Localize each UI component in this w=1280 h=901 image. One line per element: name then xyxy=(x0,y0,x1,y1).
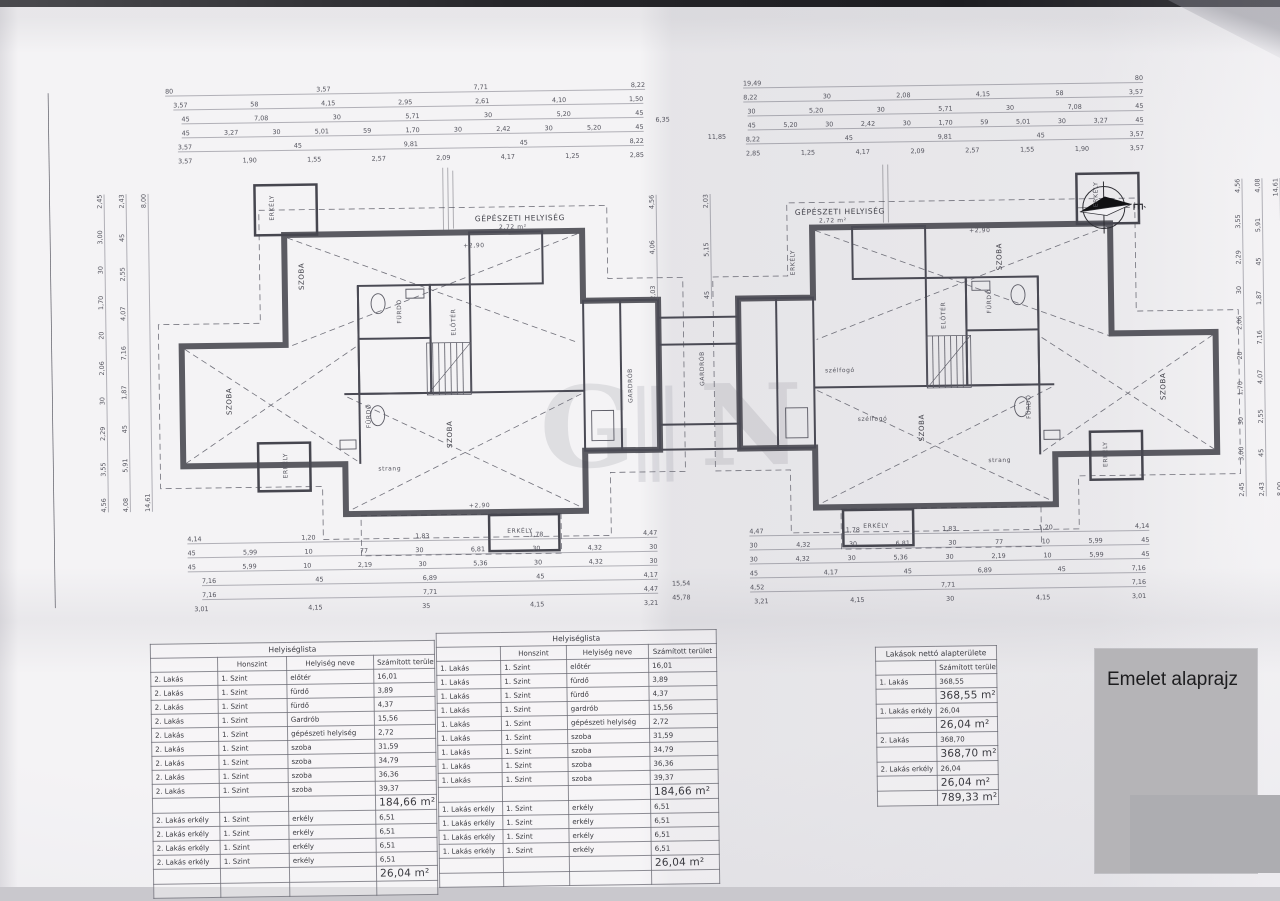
dim-value: 4,06 xyxy=(649,240,656,254)
table-cell: 15,56 xyxy=(374,710,435,725)
table-cell: 34,79 xyxy=(375,752,436,767)
dim-value: 3,57 xyxy=(173,102,187,109)
table-cell: 1. Szint xyxy=(219,768,288,783)
dim-value: 2,03 xyxy=(703,194,710,208)
dim-value: 6,89 xyxy=(978,567,992,574)
table-cell: 1. Lakás erkély xyxy=(876,703,936,718)
table-cell: 1. Lakás xyxy=(438,758,502,773)
dim-value: 5,20 xyxy=(587,125,601,132)
room-label-erkely-bl: ERKÉLY xyxy=(282,453,289,479)
room-label-furdo2-r: FÜRDŐ xyxy=(1025,395,1032,419)
dim-value: 1,25 xyxy=(801,150,815,157)
dim-value: 3,00 xyxy=(97,230,104,244)
table-cell: fürdő xyxy=(567,672,649,687)
dim-value: 5,71 xyxy=(405,113,419,120)
dim-value: 80 xyxy=(165,88,173,95)
room-label-szoba-tr: SZOBA xyxy=(995,243,1003,270)
dim-value: 4,56 xyxy=(101,498,108,512)
dim-value: 2,45 xyxy=(97,194,104,208)
table-cell: 26,04 m² xyxy=(376,865,437,881)
dim-value: 45 xyxy=(1135,103,1143,110)
dim-value: 7,71 xyxy=(423,589,437,596)
table-cell xyxy=(503,857,569,873)
dim-value: 1,83 xyxy=(415,533,429,540)
dim-value: 7,71 xyxy=(941,582,955,589)
dim-value: 30 xyxy=(484,112,492,119)
dim-value: 30 xyxy=(747,108,755,115)
dim-value: 4,47 xyxy=(749,528,763,535)
room-label-gardrob-l: GARDRÓB xyxy=(627,368,634,403)
dim-value: 30 xyxy=(99,397,106,405)
dim-value: 5,20 xyxy=(809,107,823,114)
dim-value: 30 xyxy=(454,126,462,133)
dim-value: 5,20 xyxy=(557,111,571,118)
dim-value: 45 xyxy=(294,143,302,150)
dim-value: 10 xyxy=(303,563,311,570)
column-header: Helyiség neve xyxy=(286,655,373,670)
dim-value: 4,15 xyxy=(321,100,335,107)
table-cell: 2. Lakás xyxy=(877,732,937,747)
dim-value: 4,08 xyxy=(1254,178,1261,192)
table-cell: 1. Lakás xyxy=(438,744,502,759)
table-cell: 2. Lakás xyxy=(151,671,218,686)
dim-value: 2,43 xyxy=(119,194,126,208)
table-cell: 1. Szint xyxy=(503,843,569,858)
dim-value: 8,22 xyxy=(746,136,760,143)
table-cell xyxy=(504,872,570,887)
dim-value: 1,87 xyxy=(1256,291,1263,305)
table-cell: szoba xyxy=(568,742,650,757)
dim-value: 3,21 xyxy=(644,600,658,607)
room-label-szoba-rw: SZOBA xyxy=(1159,373,1167,400)
dim-value: 6,89 xyxy=(423,575,437,582)
table-cell xyxy=(290,881,377,896)
table-cell xyxy=(219,796,288,812)
dim-value: 30 xyxy=(877,107,885,114)
table-cell: erkély xyxy=(289,838,376,853)
table-cell: gardrób xyxy=(567,700,649,715)
dim-value: 1,70 xyxy=(938,120,952,127)
table-cell: 26,04 m² xyxy=(651,854,719,870)
dim-value: 20 xyxy=(98,332,105,340)
room-label-eloter-l: ELŐTÉR xyxy=(450,309,457,336)
dim-value: 30 xyxy=(534,559,542,566)
table-cell: 1. Lakás erkély xyxy=(439,815,503,830)
dim-value: 7,08 xyxy=(254,115,268,122)
table-cell xyxy=(377,880,438,895)
table-cell xyxy=(876,717,936,733)
table-cell: előtér xyxy=(567,658,649,673)
dim-value: 30 xyxy=(849,541,857,548)
table-cell xyxy=(877,775,937,791)
dim-value: 45 xyxy=(750,570,758,577)
dim-value: 45 xyxy=(635,110,643,117)
dim-value: 2,57 xyxy=(965,147,979,154)
room-label-erkely-cr: ERKÉLY xyxy=(789,250,796,276)
dim-value: 7,16 xyxy=(1132,579,1146,586)
dim-value: 3,27 xyxy=(224,130,238,137)
column-header: Számított terület xyxy=(936,660,997,675)
level-mark: +2,90 xyxy=(969,227,990,234)
dim-value: 8,22 xyxy=(631,82,645,89)
table-cell: 26,04 m² xyxy=(936,717,997,733)
dim-value: 59 xyxy=(363,128,371,135)
dim-chain: 455,152,03 xyxy=(703,194,712,299)
table-cell xyxy=(439,857,503,873)
table-cell xyxy=(220,867,289,883)
table-cell: 184,66 m² xyxy=(375,794,436,810)
table-cell: 368,55 m² xyxy=(936,688,997,704)
dim-value: 4,47 xyxy=(643,530,657,537)
dim-value: 5,99 xyxy=(1088,538,1102,545)
dim-value: 77 xyxy=(995,539,1003,546)
dim-value: 58 xyxy=(250,101,258,108)
dim-value: 45 xyxy=(1037,132,1045,139)
dim-value: 30 xyxy=(98,266,105,274)
dim-value: 3,00 xyxy=(1238,447,1245,461)
table-cell: 6,51 xyxy=(651,840,719,855)
dim-value: 4,15 xyxy=(530,601,544,608)
table-cell: 1. Szint xyxy=(502,744,568,759)
dim-value: 3,57 xyxy=(1129,131,1143,138)
room-label-gepeszeti-l: GÉPÉSZETI HELYISÉG xyxy=(475,213,565,223)
table-cell: 1. Szint xyxy=(218,670,287,685)
table-cell: 1. Lakás xyxy=(876,674,936,689)
dim-value: 14,61 xyxy=(145,494,152,512)
table-cell xyxy=(154,883,221,898)
table-cell: erkély xyxy=(289,852,376,867)
table-cell: 2. Lakás erkély xyxy=(153,812,220,827)
dim-value: 5,15 xyxy=(703,242,710,256)
dim-value: 30 xyxy=(545,125,553,132)
dim-value: 2,03 xyxy=(650,286,657,300)
dim-value: 45 xyxy=(635,124,643,131)
dim-value: 9,81 xyxy=(404,141,418,148)
table-cell: szoba xyxy=(568,756,650,771)
dim-value: 20 xyxy=(1237,351,1244,359)
table-cell xyxy=(288,795,375,811)
dim-value: 5,99 xyxy=(243,549,257,556)
column-header: Helyiség neve xyxy=(566,644,648,659)
room-label-erkely-tr: ERKÉLY xyxy=(1092,182,1099,208)
dim-value: 4,52 xyxy=(750,584,764,591)
dim-value: 1,25 xyxy=(565,153,579,160)
table-cell: 1. Szint xyxy=(220,839,289,854)
table-cell xyxy=(438,786,502,802)
room-label-strang-l: strang xyxy=(378,465,401,472)
room-label-eloter-r: ELŐTÉR xyxy=(940,302,947,329)
dim-value: 2,85 xyxy=(746,150,760,157)
room-label-furdo2-l: FÜRDŐ xyxy=(365,404,372,428)
dim-value: 4,32 xyxy=(589,559,603,566)
table-cell: 31,59 xyxy=(650,727,718,742)
column-header: Számított terület xyxy=(373,654,434,669)
dim-value: 45 xyxy=(1256,257,1263,265)
table-cell: 15,56 xyxy=(649,699,717,714)
dim-value: 10 xyxy=(1042,538,1050,545)
dim-value: 45 xyxy=(904,568,912,575)
dim-value: 30 xyxy=(825,121,833,128)
dim-value: 10 xyxy=(304,549,312,556)
dim-value: 15,54 xyxy=(672,579,690,587)
table-cell: 6,51 xyxy=(651,826,719,841)
redaction-box xyxy=(1130,795,1280,873)
table-cell: szoba xyxy=(568,728,650,743)
dim-value: 4,17 xyxy=(824,569,838,576)
dim-value: 30 xyxy=(848,555,856,562)
dim-value: 5,91 xyxy=(122,458,129,472)
table-cell xyxy=(153,868,220,884)
dim-value: 2,57 xyxy=(372,156,386,163)
dim-value: 5,01 xyxy=(315,128,329,135)
dim-value: 30 xyxy=(272,129,280,136)
scanned-floorplan-page: { "overlay": { "title": "Emelet alaprajz… xyxy=(0,0,1280,887)
table-cell xyxy=(876,688,936,704)
dim-value: 45,78 xyxy=(672,593,690,601)
table-cell: 1. Szint xyxy=(503,801,569,816)
dim-value: 3,55 xyxy=(100,462,107,476)
column-header xyxy=(151,657,218,672)
table-cell: 6,51 xyxy=(376,823,437,838)
dim-value: 45 xyxy=(122,425,129,433)
dim-value: 2,45 xyxy=(1239,482,1246,496)
dim-value: 1,55 xyxy=(307,156,321,163)
dim-value: 3,55 xyxy=(1235,214,1242,228)
dim-value: 4,10 xyxy=(552,97,566,104)
table-cell: 16,01 xyxy=(649,657,717,672)
dim-value: 19,49 xyxy=(743,80,761,87)
dim-value: 59 xyxy=(980,119,988,126)
table-cell: 36,36 xyxy=(650,755,718,770)
floor-plan-scan: G N xyxy=(0,0,1280,896)
table-cell: Gardrób xyxy=(287,711,374,726)
table-cell: fürdő xyxy=(567,686,649,701)
table-cell: 26,04 xyxy=(936,703,997,718)
dim-value: 8,22 xyxy=(630,138,644,145)
table-cell: 2. Lakás xyxy=(151,699,218,714)
table-row: 368,70 m² xyxy=(877,746,998,763)
table-cell: 26,04 m² xyxy=(937,775,998,791)
dim-value: 2,29 xyxy=(1235,250,1242,264)
dim-value: 4,15 xyxy=(976,91,990,98)
table-cell: 368,70 xyxy=(937,732,998,747)
table-cell: 1. Lakás erkély xyxy=(439,829,503,844)
dim-value: 30 xyxy=(945,554,953,561)
dim-value: 5,99 xyxy=(1089,552,1103,559)
room-label-szelfogo-2: szélfogó xyxy=(858,416,888,423)
dim-value: 2,19 xyxy=(358,562,372,569)
dim-value: 4,17 xyxy=(644,572,658,579)
dim-value: 3,27 xyxy=(1094,117,1108,124)
dim-value: 30 xyxy=(415,547,423,554)
table-cell: erkély xyxy=(569,827,651,842)
room-label-szoba-br: SZOBA xyxy=(918,414,926,441)
table-cell xyxy=(568,784,650,800)
dim-value: 1,70 xyxy=(98,296,105,310)
table-cell: 4,37 xyxy=(374,696,435,711)
table-row: 368,55 m² xyxy=(876,688,997,705)
table-cell: 2. Lakás xyxy=(152,741,219,756)
dim-value: 30 xyxy=(1238,417,1245,425)
table-cell xyxy=(652,869,720,884)
level-mark: +2,90 xyxy=(469,502,490,509)
room-label-szoba-bl: SZOBA xyxy=(446,421,454,448)
dim-value: 30 xyxy=(333,114,341,121)
dim-value: 7,16 xyxy=(202,578,216,585)
dim-value: 2,95 xyxy=(398,99,412,106)
table-cell: 1. Szint xyxy=(502,730,568,745)
dim-value: 2,55 xyxy=(120,267,127,281)
dim-value: 8,00 xyxy=(141,194,148,208)
dim-value: 4,08 xyxy=(123,498,130,512)
dim-value: 6,81 xyxy=(471,546,485,553)
dim-value: 2,29 xyxy=(100,427,107,441)
dim-value: 7,16 xyxy=(202,592,216,599)
table-cell: 2. Lakás erkély xyxy=(877,761,937,776)
column-header xyxy=(876,660,936,675)
dim-value: 4,17 xyxy=(856,149,870,156)
room-label-gardrob-r: GARDRÓB xyxy=(699,351,706,386)
dim-value: 2,19 xyxy=(991,553,1005,560)
column-header: Honszint xyxy=(217,656,286,671)
room-list-table-apartment1: HelyiséglistaHonszintHelyiség neveSzámít… xyxy=(436,629,721,888)
table-cell: 2,72 xyxy=(649,713,717,728)
dim-value: 1,83 xyxy=(942,526,956,533)
dim-value: 3,01 xyxy=(1132,593,1146,600)
table-cell: 1. Lakás xyxy=(437,688,501,703)
dim-value: 4,56 xyxy=(1234,179,1241,193)
table-cell: 16,01 xyxy=(374,668,435,683)
table-cell: 1. Szint xyxy=(220,853,289,868)
table-cell: szoba xyxy=(288,781,375,796)
dim-value: 1,55 xyxy=(1020,146,1034,153)
table-cell: 1. Szint xyxy=(503,829,569,844)
dim-value: 4,14 xyxy=(187,536,201,543)
dim-value: 5,01 xyxy=(1016,119,1030,126)
dim-value: 7,16 xyxy=(121,346,128,360)
dim-value: 5,99 xyxy=(242,563,256,570)
dim-value: 7,08 xyxy=(1068,104,1082,111)
dim-value: 1,90 xyxy=(1075,146,1089,153)
dim-value: 2,42 xyxy=(861,121,875,128)
table-cell: 4,37 xyxy=(649,685,717,700)
room-label-gepeszeti-area-l: 2,72 m² xyxy=(499,224,527,231)
table-cell: 1. Szint xyxy=(220,811,289,826)
table-cell: szoba xyxy=(288,753,375,768)
table-cell: 1. Szint xyxy=(218,712,287,727)
dim-value: 4,15 xyxy=(1036,594,1050,601)
table-cell: erkély xyxy=(569,813,651,828)
room-label-szoba-tl: SZOBA xyxy=(297,263,305,290)
table-cell: 1. Szint xyxy=(501,660,567,675)
dim-value: 1,78 xyxy=(529,531,543,538)
table-cell: 2. Lakás xyxy=(151,727,218,742)
dim-value: 3,57 xyxy=(1130,145,1144,152)
dim-value: 45 xyxy=(748,122,756,129)
table-cell: 1. Lakás xyxy=(437,660,501,675)
dim-value: 2,08 xyxy=(896,92,910,99)
dim-value: 45 xyxy=(520,140,528,147)
dim-value: 45 xyxy=(704,291,711,299)
table-cell: fürdő xyxy=(287,683,374,698)
table-cell: erkély xyxy=(569,841,651,856)
dim-value: 30 xyxy=(1236,286,1243,294)
dim-value: 7,71 xyxy=(473,84,487,91)
room-label-erkely-tl: ERKÉLY xyxy=(269,195,276,221)
dim-value: 6,81 xyxy=(896,540,910,547)
dim-value: 45 xyxy=(1135,117,1143,124)
dim-value: 2,06 xyxy=(1236,316,1243,330)
table-cell: 368,55 xyxy=(936,674,997,689)
table-row xyxy=(154,880,438,898)
table-cell: 6,51 xyxy=(651,798,719,813)
dim-value: 4,14 xyxy=(1135,523,1149,530)
table-cell: 368,70 m² xyxy=(937,746,998,762)
dim-value: 5,36 xyxy=(893,554,907,561)
table-cell: erkély xyxy=(289,810,376,825)
level-mark: +2,90 xyxy=(463,242,484,249)
dim-value: 4,07 xyxy=(1257,370,1264,384)
table-cell: 39,37 xyxy=(650,769,718,784)
table-cell: erkély xyxy=(289,824,376,839)
table-cell: szoba xyxy=(568,770,650,785)
dim-value: 45 xyxy=(182,130,190,137)
dim-value: 1,20 xyxy=(1039,524,1053,531)
table-cell: 1. Szint xyxy=(218,684,287,699)
table-cell: 1. Lakás erkély xyxy=(439,801,503,816)
dim-value: 1,20 xyxy=(301,535,315,542)
table-cell xyxy=(502,786,568,802)
dim-value: 3,57 xyxy=(316,86,330,93)
dim-value: 3,57 xyxy=(178,158,192,165)
table-cell: 1. Szint xyxy=(501,674,567,689)
net-area-summary-table: Lakások nettó alapterületeSzámított terü… xyxy=(875,645,999,807)
dim-value: 4,07 xyxy=(120,307,127,321)
dim-value: 4,32 xyxy=(796,542,810,549)
table-cell: 1. Lakás xyxy=(437,716,501,731)
dim-value: 4,15 xyxy=(308,604,322,611)
column-header: Számított terület xyxy=(648,643,716,658)
table-cell: gépészeti helyiség xyxy=(567,714,649,729)
table-cell: szoba xyxy=(288,739,375,754)
dim-value: 77 xyxy=(360,548,368,555)
dim-value: 1,78 xyxy=(846,527,860,534)
table-cell: 1. Lakás xyxy=(437,674,501,689)
dim-value: 45 xyxy=(187,550,195,557)
room-label-szoba-lw: SZOBA xyxy=(225,388,233,415)
table-cell: 34,79 xyxy=(650,741,718,756)
room-label-szelfogo-1: szélfogó xyxy=(825,367,855,374)
table-cell: 789,33 m² xyxy=(937,790,998,806)
table-cell xyxy=(569,855,651,871)
dim-value: 30 xyxy=(823,93,831,100)
table-cell: 6,51 xyxy=(376,809,437,824)
dim-value: 45 xyxy=(315,576,323,583)
dim-value: 30 xyxy=(948,540,956,547)
dim-value: 2,43 xyxy=(1259,482,1266,496)
table-cell: 2. Lakás xyxy=(151,685,218,700)
table-cell: 1. Szint xyxy=(503,815,569,830)
dim-chain: 2,034,064,56 xyxy=(649,195,658,300)
table-cell: 2. Lakás xyxy=(151,713,218,728)
table-cell: 1. Szint xyxy=(220,825,289,840)
room-list-table-apartment2: HelyiséglistaHonszintHelyiség neveSzámít… xyxy=(150,640,439,899)
table-row: 789,33 m² xyxy=(877,790,998,807)
dim-value: 30 xyxy=(649,544,657,551)
table-cell xyxy=(221,882,290,897)
table-cell: 1. Szint xyxy=(502,758,568,773)
table-cell: 1. Szint xyxy=(501,716,567,731)
